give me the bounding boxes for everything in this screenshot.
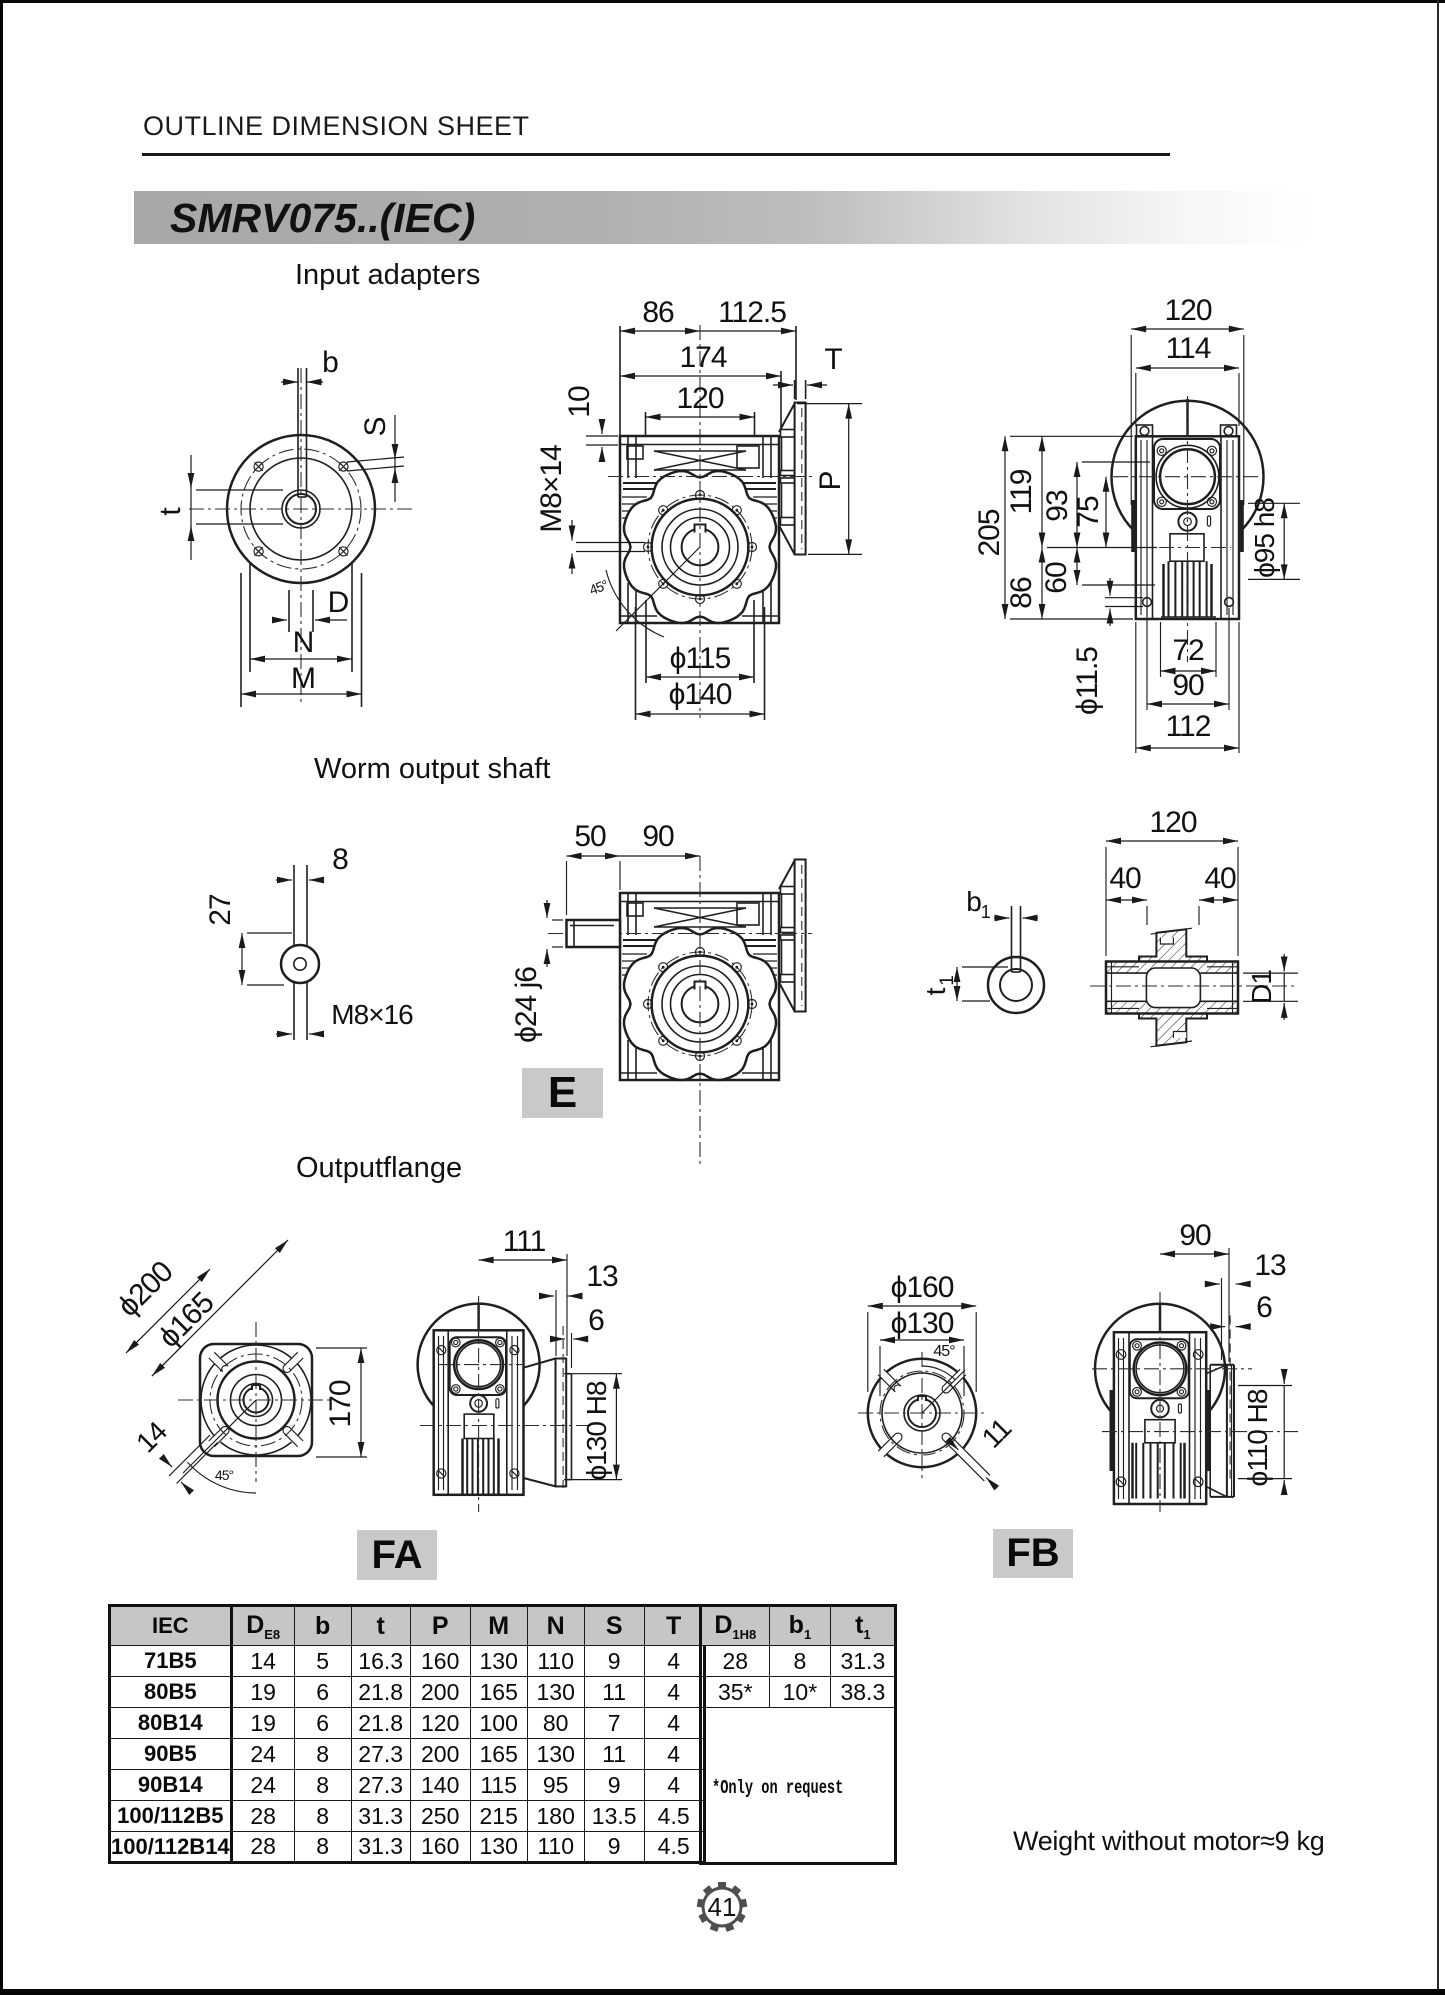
svg-text:120: 120 [676, 382, 723, 415]
svg-text:120: 120 [1164, 294, 1211, 327]
svg-text:ϕ130 H8: ϕ130 H8 [581, 1381, 612, 1480]
svg-text:170: 170 [324, 1380, 357, 1427]
svg-text:205: 205 [973, 509, 1006, 556]
svg-text:ϕ110 H8: ϕ110 H8 [1242, 1389, 1273, 1486]
svg-text:6: 6 [588, 1304, 604, 1337]
svg-text:114: 114 [1166, 332, 1211, 365]
svg-text:t: t [920, 987, 951, 995]
svg-text:D: D [328, 586, 349, 619]
svg-text:93: 93 [1041, 490, 1074, 522]
svg-text:112.5: 112.5 [718, 296, 786, 329]
svg-text:b1: b1 [966, 886, 991, 922]
svg-text:ϕ11.5: ϕ11.5 [1071, 647, 1104, 715]
svg-text:120: 120 [1149, 806, 1196, 839]
svg-text:t: t [154, 507, 187, 516]
svg-text:45°: 45° [215, 1467, 234, 1483]
svg-text:ϕ115: ϕ115 [670, 642, 731, 675]
svg-text:1: 1 [937, 976, 958, 986]
svg-text:174: 174 [679, 341, 726, 374]
svg-text:8: 8 [332, 843, 348, 876]
svg-text:86: 86 [642, 296, 674, 329]
svg-text:13: 13 [1254, 1249, 1286, 1282]
svg-text:90: 90 [642, 820, 674, 853]
svg-text:72: 72 [1172, 634, 1204, 667]
svg-text:40: 40 [1204, 862, 1236, 895]
svg-text:45°: 45° [587, 577, 610, 598]
svg-text:41: 41 [708, 1892, 737, 1922]
svg-text:45°: 45° [933, 1343, 955, 1360]
svg-text:ϕ95 h8: ϕ95 h8 [1249, 498, 1280, 578]
svg-text:10: 10 [563, 386, 596, 418]
svg-text:S: S [359, 417, 392, 436]
svg-text:N: N [293, 626, 314, 659]
svg-text:M: M [291, 662, 315, 695]
svg-text:111: 111 [503, 1225, 546, 1258]
svg-text:90: 90 [1172, 669, 1204, 702]
svg-text:75: 75 [1072, 496, 1105, 528]
svg-text:60: 60 [1040, 562, 1073, 594]
svg-text:13: 13 [586, 1260, 618, 1293]
svg-text:ϕ130: ϕ130 [891, 1307, 954, 1340]
svg-text:27: 27 [204, 894, 237, 926]
svg-text:P: P [814, 471, 847, 490]
svg-text:D1: D1 [1246, 970, 1277, 1004]
svg-text:M8×14: M8×14 [535, 445, 568, 533]
svg-text:14: 14 [130, 1416, 173, 1459]
svg-text:ϕ140: ϕ140 [669, 678, 732, 711]
svg-text:112: 112 [1166, 710, 1211, 743]
svg-text:6: 6 [1256, 1291, 1272, 1324]
svg-text:ϕ160: ϕ160 [891, 1271, 954, 1304]
svg-text:119: 119 [1005, 469, 1038, 514]
svg-text:ϕ24 j6: ϕ24 j6 [510, 967, 543, 1043]
svg-text:11: 11 [976, 1412, 1017, 1453]
svg-text:86: 86 [1005, 577, 1038, 609]
svg-text:90: 90 [1179, 1219, 1211, 1252]
svg-text:40: 40 [1109, 862, 1141, 895]
svg-text:50: 50 [574, 820, 606, 853]
svg-text:T: T [824, 343, 842, 376]
svg-text:M8×16: M8×16 [331, 999, 413, 1030]
svg-text:b: b [322, 346, 338, 379]
